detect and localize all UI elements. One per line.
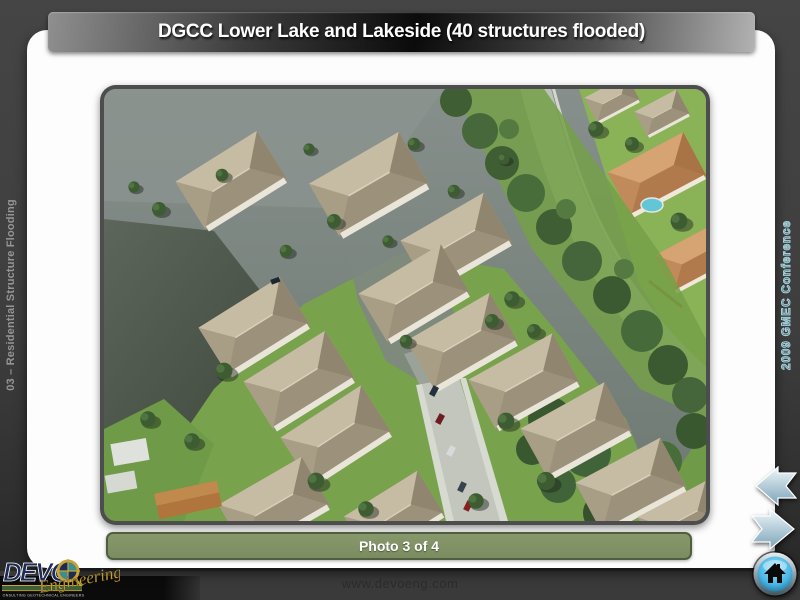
next-photo-button[interactable] — [751, 508, 797, 550]
photo-frame — [100, 85, 710, 525]
photo-caption-label: Photo 3 of 4 — [359, 538, 439, 554]
flood-aerial-photo — [104, 89, 706, 521]
devo-engineering-logo: DEVO CONSULTING GEOTECHNICAL ENGINEERS E… — [2, 550, 120, 600]
slide-title: DGCC Lower Lake and Lakeside (40 structu… — [158, 21, 645, 43]
home-button[interactable] — [751, 550, 799, 598]
section-rail-label: 03 – Residential Structure Flooding — [5, 199, 17, 391]
flood-aerial-photo-scene — [104, 89, 706, 521]
arrow-right-icon — [752, 509, 794, 549]
arrow-left-icon — [756, 467, 796, 505]
conference-rail-label: 2009 GMEC Conference — [781, 220, 793, 370]
slide-title-banner: DGCC Lower Lake and Lakeside (40 structu… — [48, 12, 755, 52]
previous-photo-button[interactable] — [753, 466, 797, 506]
photo-caption: Photo 3 of 4 — [106, 532, 692, 560]
